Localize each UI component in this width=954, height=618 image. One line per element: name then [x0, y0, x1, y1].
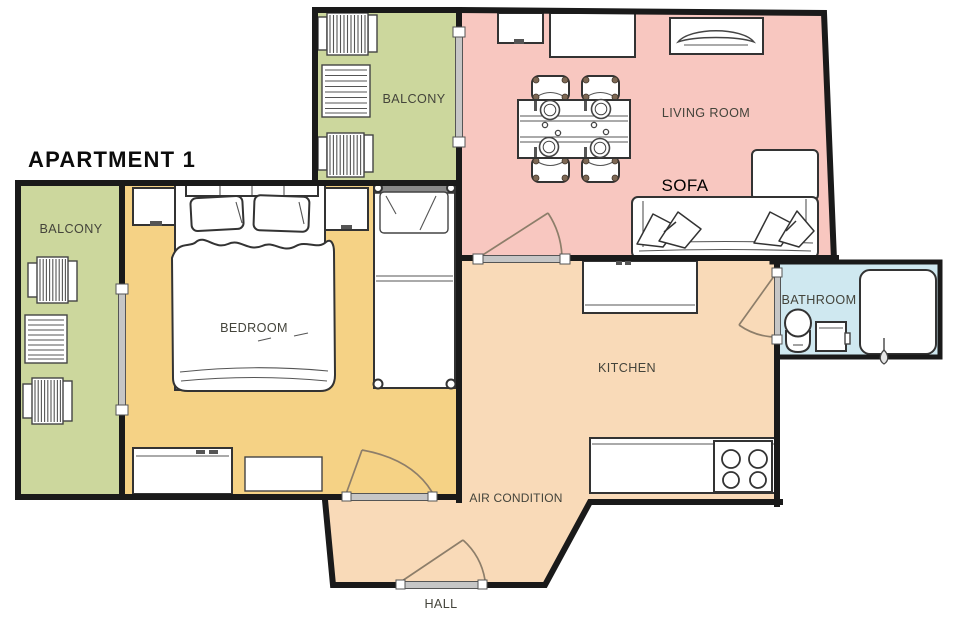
dining-chair [532, 157, 569, 182]
label-air-condition: AIR CONDITION [469, 491, 562, 505]
balcony-top-shutter-1 [318, 13, 377, 55]
balcony-left-louver-vent [25, 315, 67, 363]
hall-entrance-door [405, 582, 478, 589]
label-bathroom: BATHROOM [781, 293, 856, 307]
balcony-bedroom-sliding-door [119, 293, 126, 405]
label-balcony-left: BALCONY [40, 222, 103, 236]
shower [860, 270, 936, 354]
balcony-living-sliding-door [456, 37, 463, 137]
label-balcony-top: BALCONY [383, 92, 446, 106]
nightstand-right [325, 188, 368, 230]
tv [670, 18, 763, 54]
balcony-left-shutter-2 [23, 378, 72, 424]
toilet [785, 310, 811, 353]
label-hall: HALL [424, 597, 457, 611]
balcony-top-shutter-2 [318, 133, 373, 177]
balcony-left-shutter-1 [28, 257, 77, 303]
nightstand-left [133, 188, 180, 226]
label-sofa: SOFA [662, 176, 709, 195]
label-bedroom: BEDROOM [220, 321, 288, 335]
kitchen-counter-top [583, 261, 697, 313]
page-title: APARTMENT 1 [28, 147, 196, 172]
dining-chair [582, 157, 619, 182]
single-bed [374, 183, 456, 389]
bathroom-door [775, 277, 781, 335]
kitchen-counter-stove [590, 438, 778, 493]
sideboard [550, 13, 635, 57]
balcony-top-louver-vent [322, 65, 370, 117]
cabinet [498, 13, 543, 44]
floor-plan-canvas: APARTMENT 1 BALCONY BALCONY BEDROOM LIVI… [0, 0, 954, 618]
dining-chair [532, 76, 569, 101]
dining-table [518, 100, 630, 159]
label-kitchen: KITCHEN [598, 361, 656, 375]
dining-chair [582, 76, 619, 101]
dresser [133, 448, 232, 494]
double-bed [172, 182, 335, 391]
bedroom-mat [245, 457, 322, 491]
floor-plan: APARTMENT 1 BALCONY BALCONY BEDROOM LIVI… [0, 0, 954, 618]
bathroom-sink [816, 322, 850, 351]
living-kitchen-door [482, 256, 560, 263]
label-living-room: LIVING ROOM [662, 106, 750, 120]
bedroom-hall-door [350, 494, 428, 501]
